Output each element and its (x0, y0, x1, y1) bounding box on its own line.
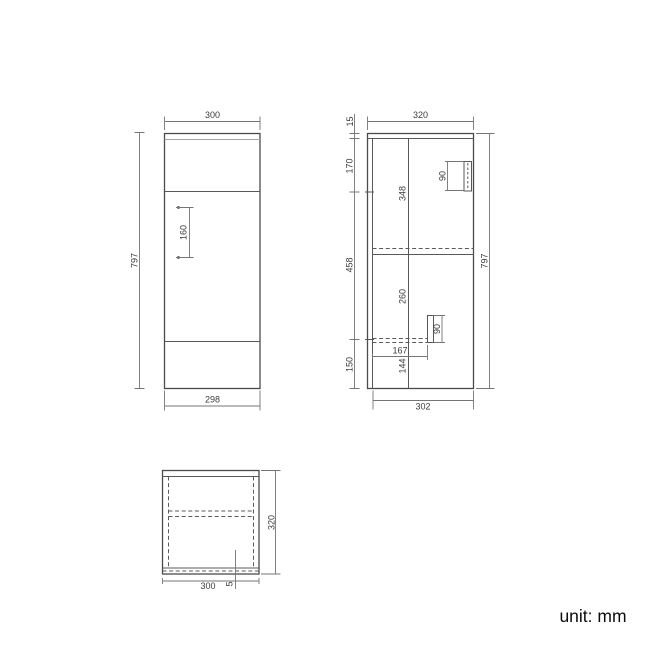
side-hidden-plinth-lines (373, 339, 428, 343)
side-worktop-thickness-label: 15 (345, 116, 355, 126)
front-panel-lines (165, 192, 261, 342)
side-bottom-inner-label: 144 (398, 358, 408, 373)
unit-label: unit: mm (559, 606, 626, 626)
technical-drawing: 300 797 160 298 320 15 170 458 150 79 (0, 0, 650, 650)
drawing-canvas: 300 797 160 298 320 15 170 458 150 79 (0, 0, 650, 650)
side-segment-upper-label: 170 (345, 158, 355, 173)
front-outline (165, 134, 261, 389)
side-lower-section-label: 260 (398, 289, 408, 304)
top-hidden-lines (163, 477, 260, 572)
top-inner-lines (163, 477, 260, 569)
side-handle-offset-label: 167 (392, 346, 407, 356)
front-height-label: 797 (130, 253, 140, 268)
front-view: 300 797 160 298 (130, 110, 261, 411)
side-segment-middle-label: 458 (345, 257, 355, 272)
side-depth-top-label: 320 (413, 110, 428, 120)
top-outline (163, 471, 260, 575)
front-width-bottom-label: 298 (205, 395, 220, 405)
side-outline (368, 134, 474, 389)
side-handle-top-length-label: 90 (438, 171, 448, 181)
side-height-label: 797 (480, 253, 490, 268)
top-edge-gap-label: 5 (225, 581, 235, 586)
side-left-dim-lines (350, 114, 360, 389)
side-handle-bottom-length-label: 90 (432, 324, 442, 334)
top-depth-label: 320 (267, 515, 277, 530)
front-width-top-label: 300 (205, 110, 220, 120)
side-inner-lines (365, 139, 474, 389)
top-view: 300 5 320 (163, 471, 281, 592)
side-handle-top-dim-lines (445, 162, 464, 191)
side-view: 320 15 170 458 150 797 348 260 144 90 90… (345, 110, 495, 412)
front-hole-spacing-label: 160 (179, 225, 189, 240)
side-depth-bottom-label: 302 (415, 402, 430, 412)
side-segment-bottom-label: 150 (345, 357, 355, 372)
side-upper-section-label: 348 (398, 186, 408, 201)
top-width-label: 300 (200, 581, 215, 591)
